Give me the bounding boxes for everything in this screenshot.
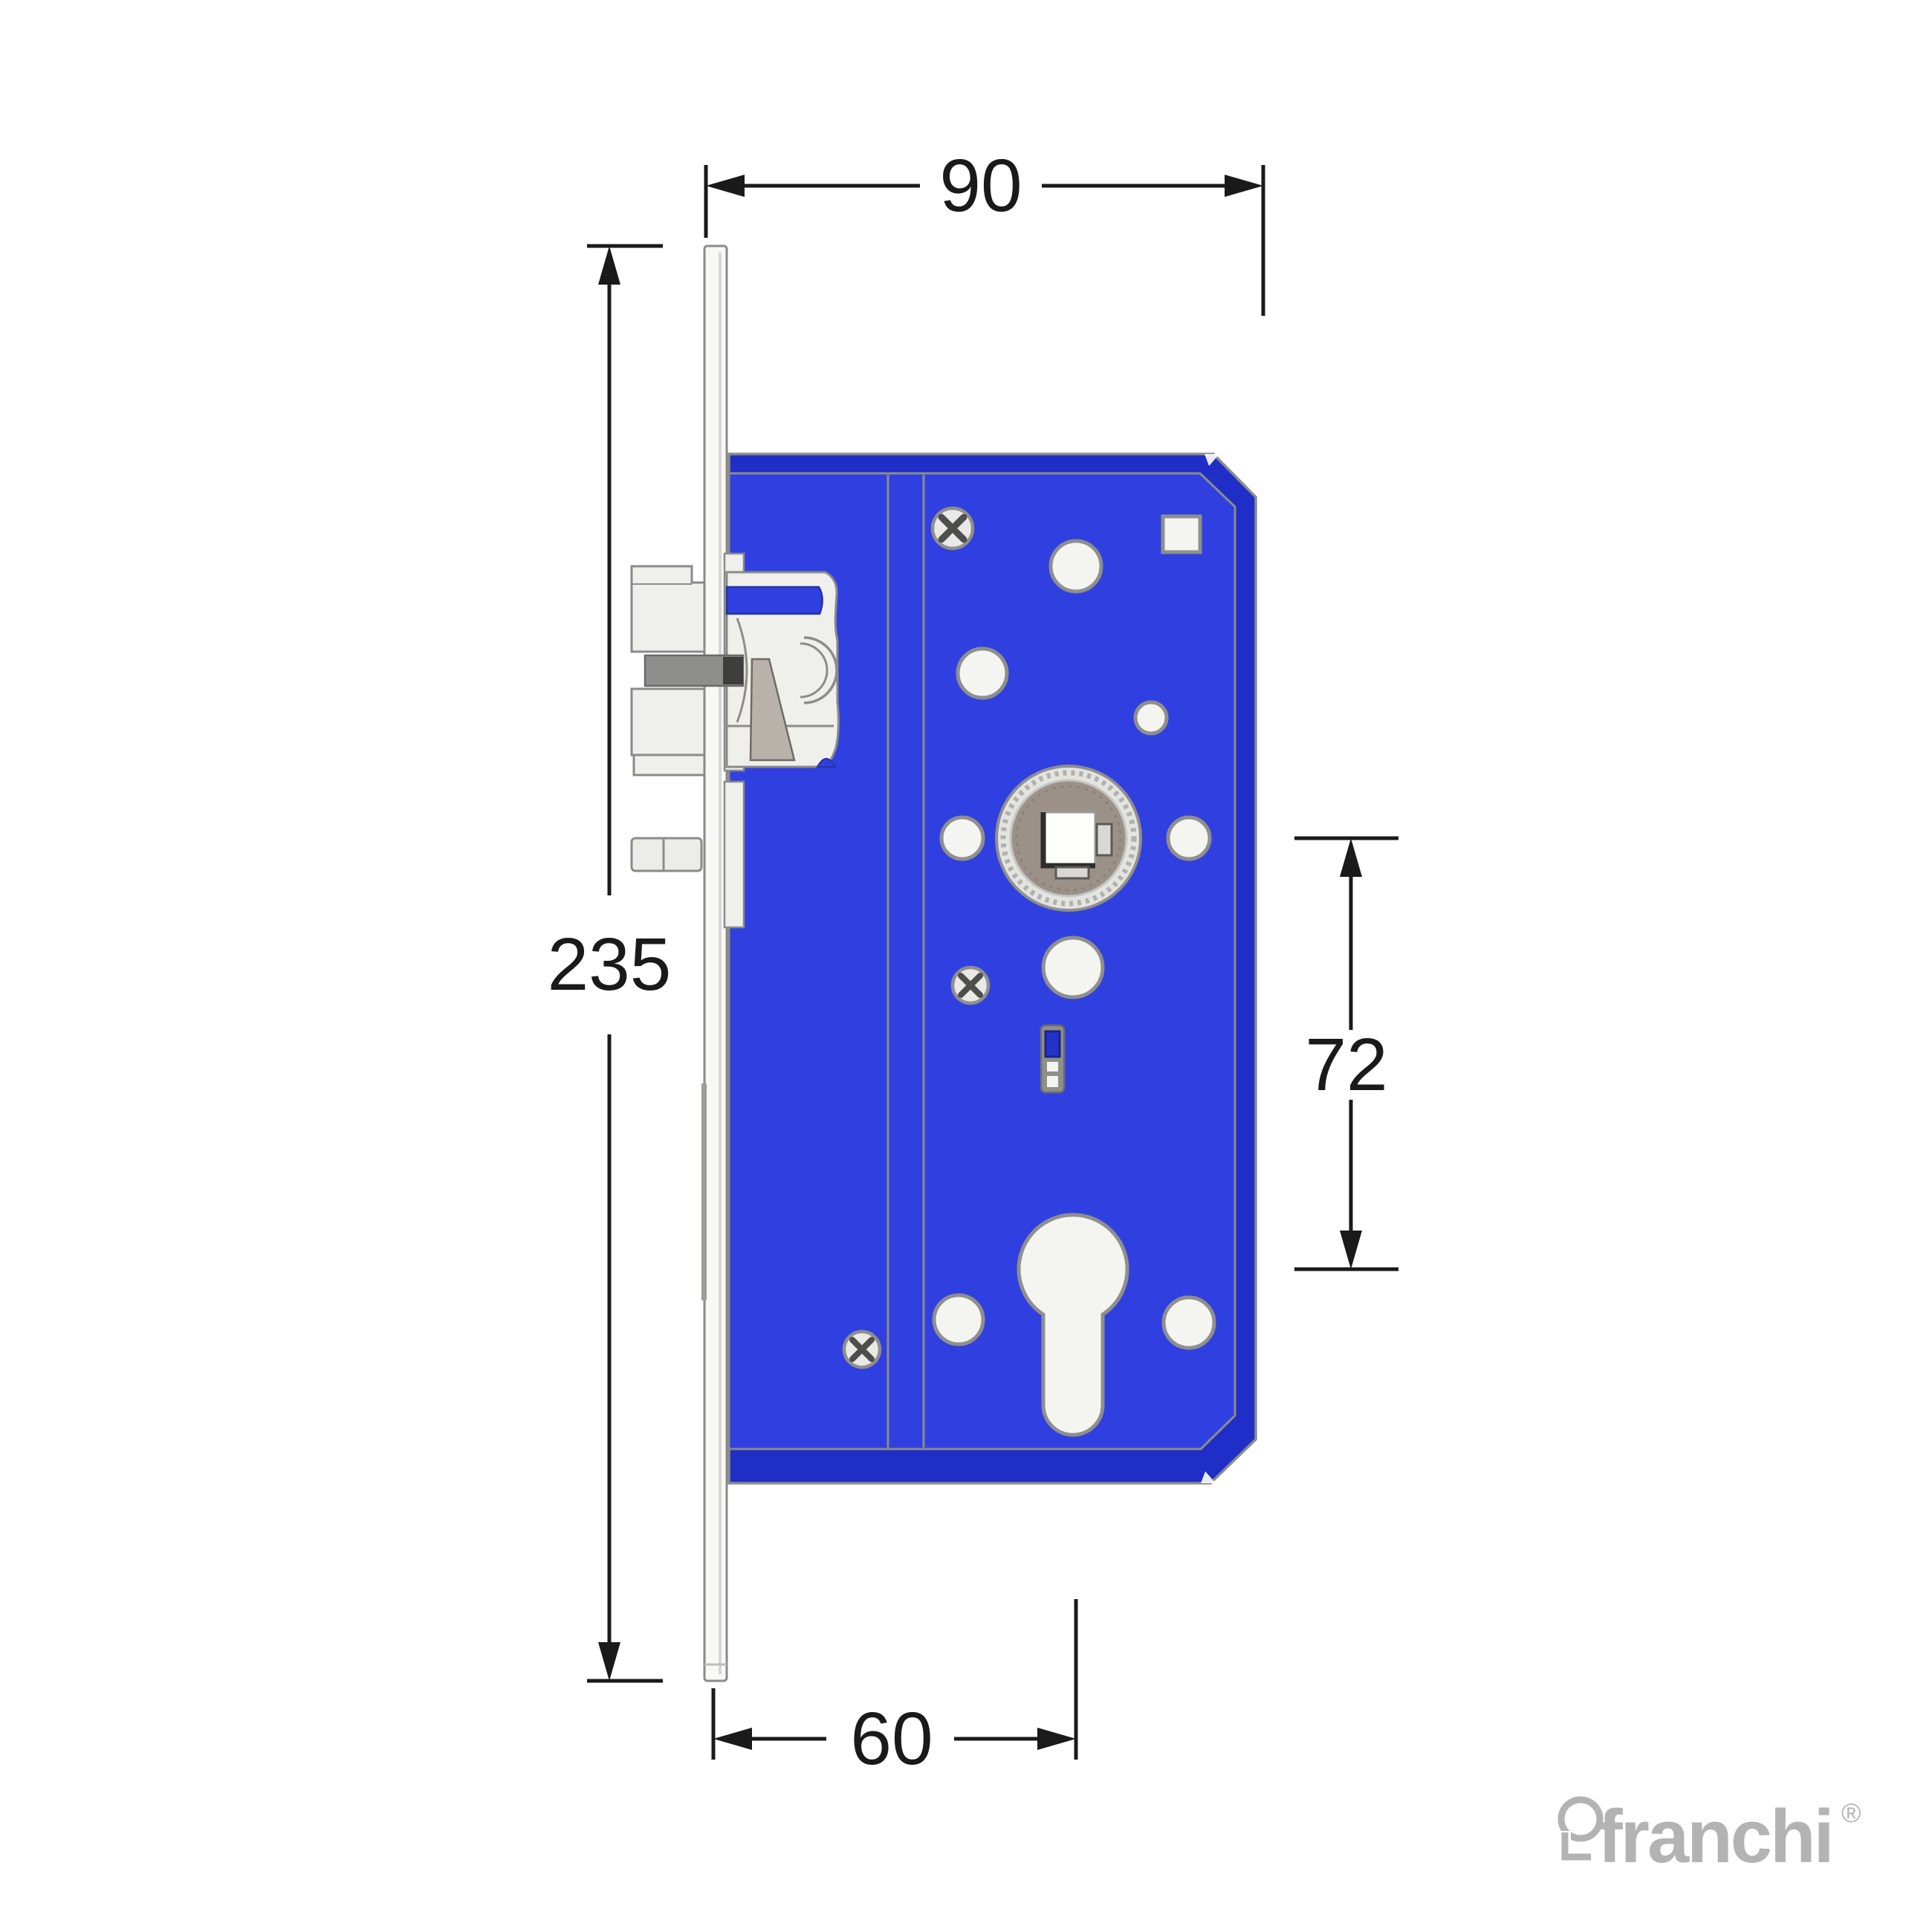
arrow-down-icon [1340,1231,1362,1269]
faceplate [701,246,727,1681]
dimension-backset-value: 60 [850,1697,933,1780]
faceplate-bar [704,246,727,1681]
arrow-right-icon [1037,1728,1076,1750]
spindle-square-hole [1043,812,1095,866]
handle-follower-hub [996,766,1141,910]
faceplate-cylinder-shadow [701,1083,707,1300]
screw-head-icon [844,1332,880,1367]
fixing-hole [941,817,983,859]
fixing-hole [1043,938,1103,997]
brand-name: franchi [1598,1795,1832,1878]
fixing-hole [1168,817,1210,859]
keyhole-logo-icon [1558,1800,1600,1857]
arrow-left-icon [713,1728,752,1750]
follower-tab-right [1097,824,1112,855]
mortise-lock-diagram: 90 235 72 60 [0,0,1932,1932]
follower-tab-bottom [1056,867,1089,878]
latch-head-top [632,566,704,652]
dimension-backset: 60 [713,1599,1076,1780]
fixing-hole [1051,541,1101,591]
dimension-width-value: 90 [939,144,1022,227]
square-hole [1163,516,1200,552]
arrow-right-icon [1225,175,1263,197]
screw-head-icon [933,508,973,548]
arrow-left-icon [706,175,745,197]
technical-drawing-page: 90 235 72 60 [0,0,1932,1932]
fixing-hole [934,1295,983,1344]
arrow-down-icon [598,1642,620,1681]
dimension-centers: 72 [1294,838,1398,1269]
registered-mark: ® [1841,1798,1861,1828]
dimension-height: 235 [548,246,672,1681]
dimension-width: 90 [706,144,1263,316]
brand-logo: franchi ® [1558,1795,1861,1878]
deadlock-pin [632,838,701,871]
dimension-centers-value: 72 [1305,1023,1387,1106]
locking-plate-slot [1041,1025,1064,1092]
arrow-up-icon [1340,838,1362,877]
screw-head-icon [953,967,988,1003]
latch-head-foot [634,755,704,775]
dimension-height-value: 235 [548,923,672,1006]
latch-head-bottom [632,689,704,755]
latch-flange [724,782,744,927]
fixing-hole [958,649,1007,698]
latch-spring-window [727,587,823,614]
arrow-up-icon [598,246,620,285]
latch-shaft-dark [723,657,743,684]
fixing-hole [1135,702,1167,733]
fixing-hole [1164,1297,1214,1348]
